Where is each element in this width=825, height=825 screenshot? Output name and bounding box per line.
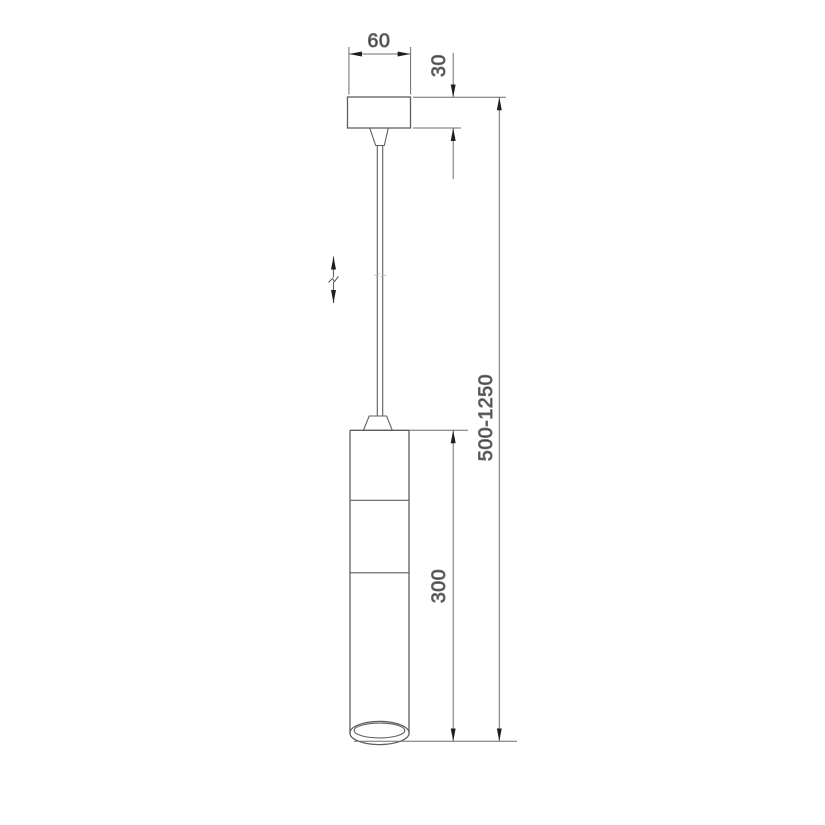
dimension-canopy-width: 60: [349, 30, 411, 95]
dimension-body-height: 300: [354, 430, 517, 741]
pendant-lamp-dimension-drawing: 60 30 300 500-1250: [0, 0, 825, 825]
canopy-width-label: 60: [368, 30, 391, 52]
drawing-canvas: 60 30 300 500-1250: [0, 0, 825, 825]
lamp-bottom-rim-inner: [354, 723, 405, 738]
dimension-overall-height: 500-1250: [475, 97, 499, 741]
height-adjustment-icon: [329, 257, 339, 304]
lamp-object-layer: [329, 97, 411, 745]
suspension-cable: [375, 146, 387, 417]
canopy-height-label: 30: [428, 54, 450, 77]
dimension-canopy-height: 30: [413, 53, 506, 179]
overall-height-label: 500-1250: [475, 374, 497, 461]
lamp-body: [350, 430, 409, 744]
ceiling-canopy: [348, 97, 411, 128]
body-height-label: 300: [428, 569, 450, 603]
lamp-cable-gland: [363, 416, 392, 430]
canopy-cable-gland: [370, 128, 389, 146]
dimension-layer: 60 30 300 500-1250: [349, 30, 517, 741]
